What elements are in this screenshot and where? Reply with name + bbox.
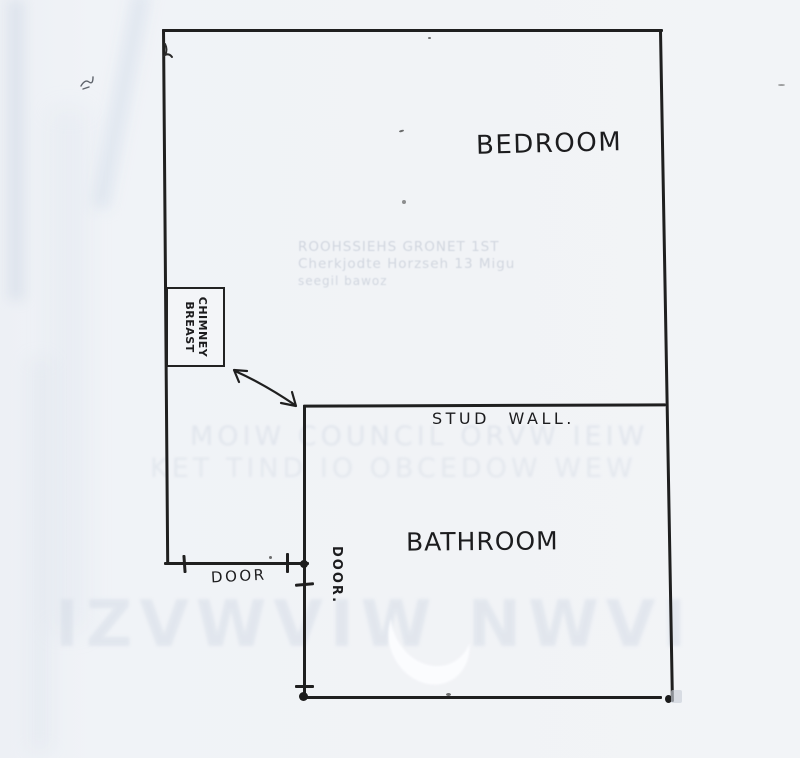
bleed-line: Cherkjodte Horzseh 13 Migu xyxy=(298,256,515,273)
bleed-line: seegil bawoz xyxy=(298,273,515,290)
ink-speck xyxy=(399,129,404,132)
bleed-through-text-band: MOIW COUNCIL ORVW IEIW xyxy=(190,421,648,452)
bleed-line: ROOHSSIEHS GRONET 1ST xyxy=(298,239,515,256)
door-tick xyxy=(182,555,186,573)
scan-streak xyxy=(30,360,50,750)
chimney-breast-box: CHIMNEY BREAST xyxy=(166,287,225,367)
bedroom-label: BEDROOM xyxy=(476,127,623,161)
bleed-through-text-band: IZVWVIW NWVI xyxy=(55,588,693,662)
ink-speck xyxy=(428,37,431,39)
ink-speck xyxy=(269,556,272,559)
scan-streak xyxy=(91,0,151,210)
ink-speck xyxy=(402,200,406,204)
door-label-vertical: DOOR. xyxy=(329,546,344,606)
door-tick xyxy=(286,553,289,573)
gray-smudge xyxy=(671,690,682,703)
stud-wall-label: STUD WALL. xyxy=(432,409,575,428)
bleed-through-text-block: ROOHSSIEHS GRONET 1ST Cherkjodte Horzseh… xyxy=(298,239,515,290)
ink-speck xyxy=(778,84,785,86)
bleed-through-text-band: KET TIND IO OBCEDOW WEW xyxy=(150,453,637,484)
bathroom-label: BATHROOM xyxy=(406,526,559,556)
wall-bathroom-bottom xyxy=(305,696,662,699)
wall-stud xyxy=(303,403,666,407)
chimney-label-line2: BREAST xyxy=(183,297,196,358)
scan-streak xyxy=(52,110,86,630)
ink-speck xyxy=(446,693,451,696)
wall-bathroom-left-upper xyxy=(303,405,306,566)
ink-blob xyxy=(300,560,308,568)
door-label-horizontal: DOOR xyxy=(211,566,267,587)
stray-scribble xyxy=(78,73,96,93)
door-tick xyxy=(295,685,314,688)
wall-right xyxy=(659,31,674,702)
chimney-label-line1: CHIMNEY xyxy=(196,297,209,358)
scan-streak xyxy=(8,0,24,300)
floor-plan-scan: ROOHSSIEHS GRONET 1ST Cherkjodte Horzseh… xyxy=(0,0,800,758)
wall-top xyxy=(162,29,663,32)
ink-blob xyxy=(299,692,308,701)
watermark-crescent xyxy=(373,581,485,699)
double-arrow-annotation xyxy=(222,361,308,413)
chimney-breast-label: CHIMNEY BREAST xyxy=(183,297,209,358)
